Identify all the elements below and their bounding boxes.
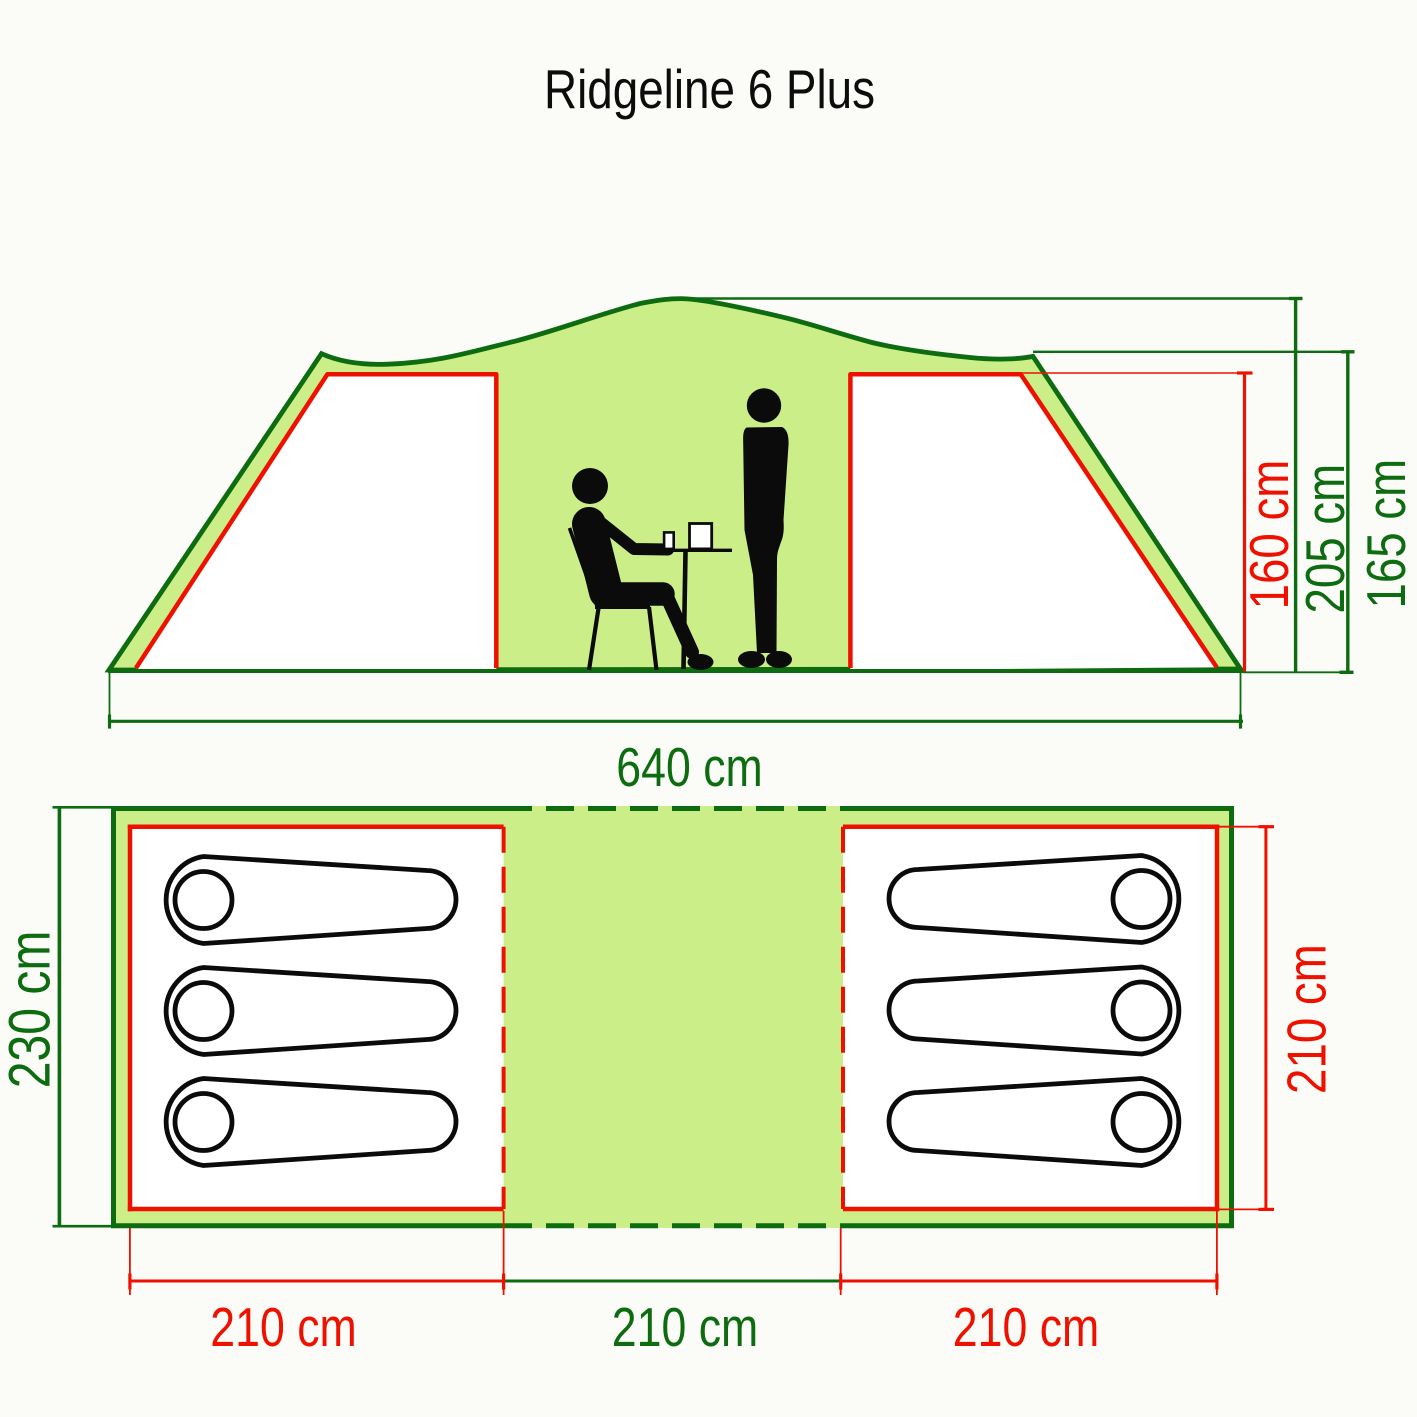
svg-text:Ridgeline 6 Plus: Ridgeline 6 Plus <box>544 58 875 120</box>
svg-text:160 cm: 160 cm <box>1238 460 1300 610</box>
svg-text:210 cm: 210 cm <box>612 1297 758 1358</box>
svg-text:210 cm: 210 cm <box>210 1297 356 1358</box>
svg-text:210 cm: 210 cm <box>1275 944 1337 1094</box>
svg-text:210 cm: 210 cm <box>953 1297 1099 1358</box>
svg-text:230 cm: 230 cm <box>0 930 63 1088</box>
svg-text:640 cm: 640 cm <box>616 737 762 798</box>
svg-text:165 cm: 165 cm <box>1355 459 1417 609</box>
